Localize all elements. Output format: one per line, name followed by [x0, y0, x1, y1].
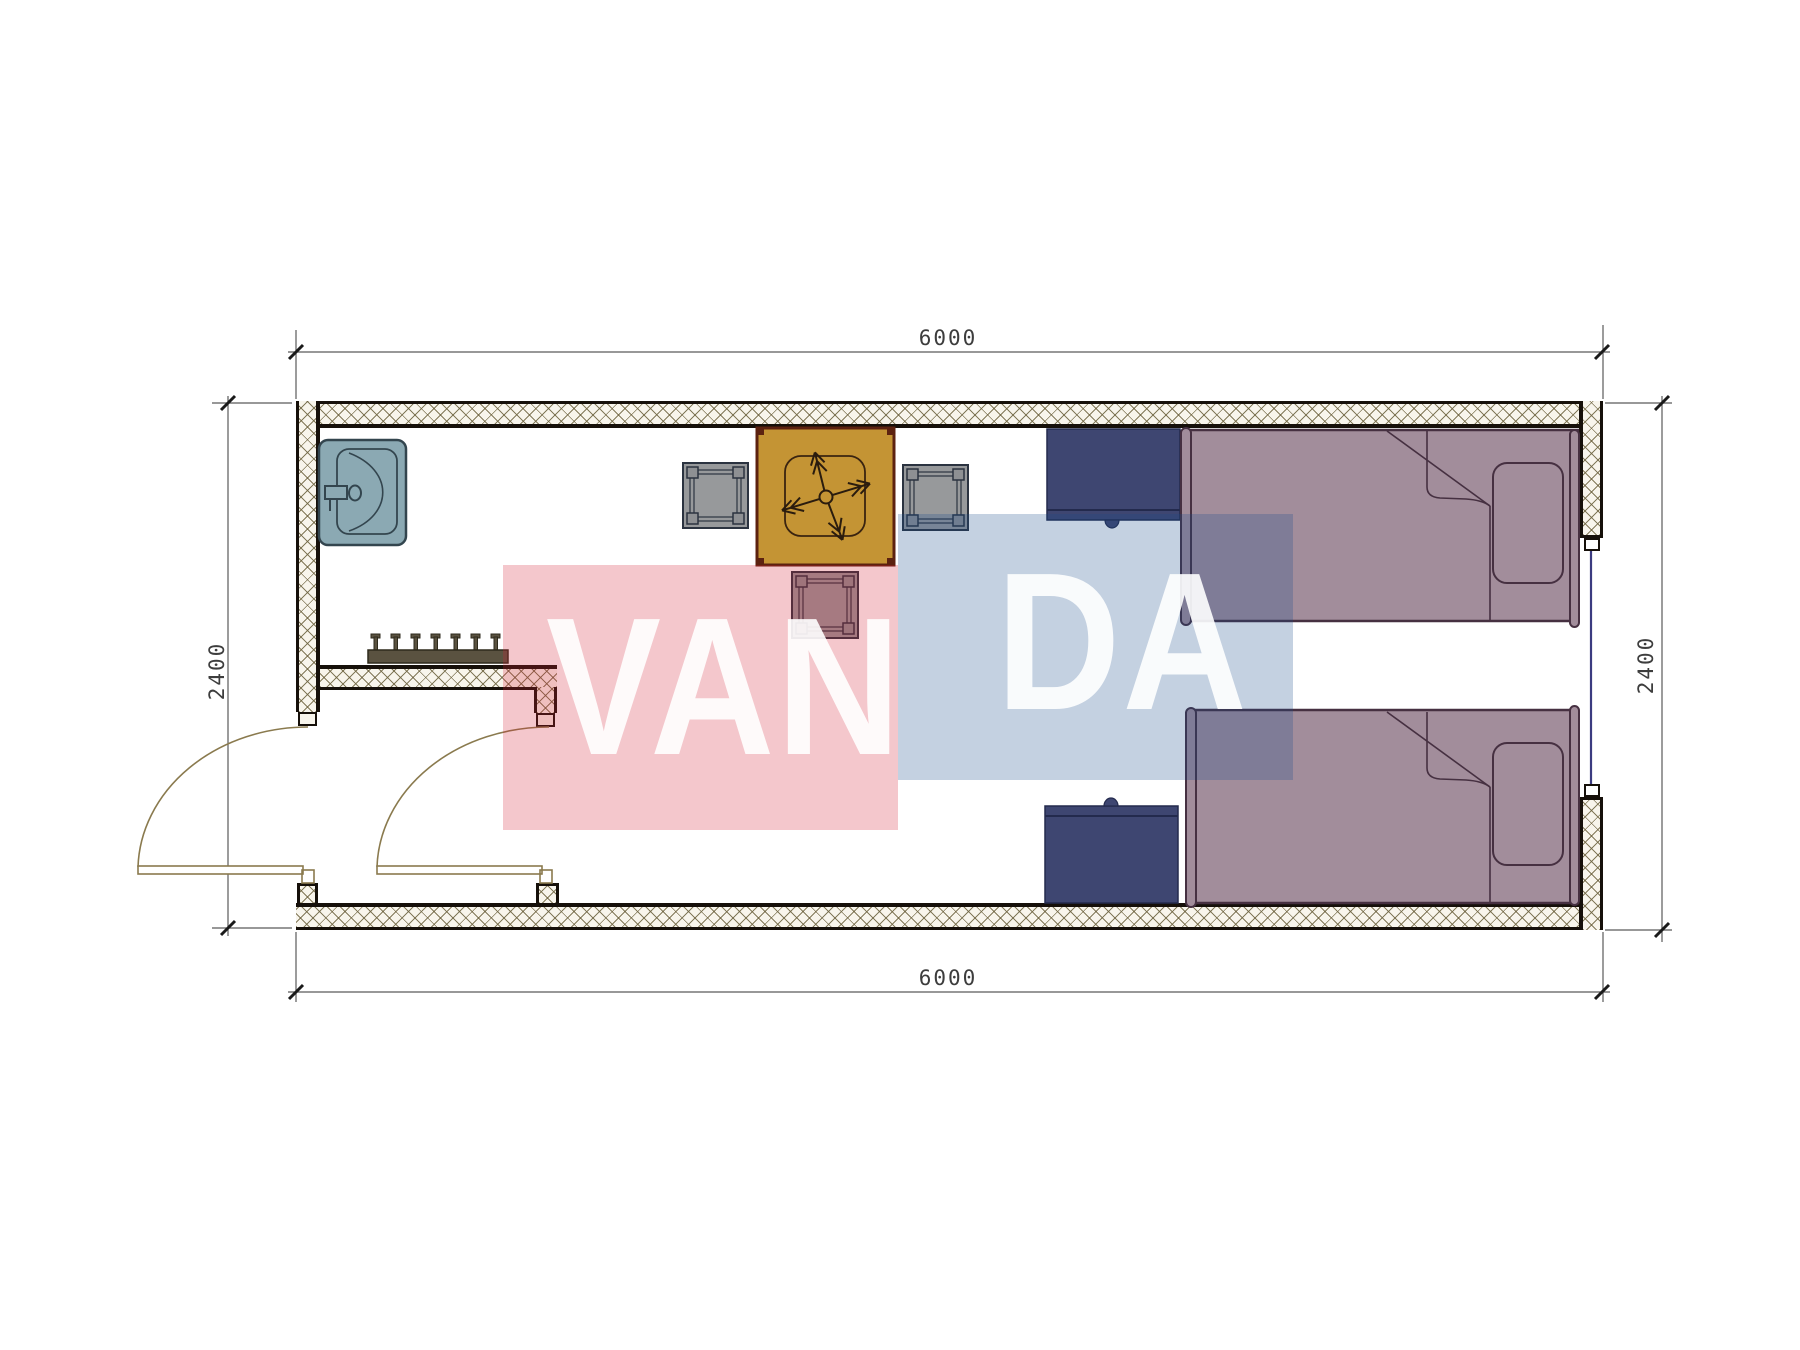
pillow-top [1493, 463, 1563, 583]
dimension-label-top: 6000 [903, 326, 993, 350]
coat-rack [368, 634, 508, 663]
table [757, 428, 894, 565]
watermark-text-van: VAN [546, 589, 903, 785]
sink-tap [325, 486, 347, 499]
dimension-label-left: 2400 [205, 626, 229, 716]
watermark-text-da: DA [996, 544, 1249, 740]
pillow-bottom [1493, 743, 1563, 865]
floor-plan-canvas: VAN DA 6000 6000 2400 2400 [0, 0, 1800, 1350]
dimension-label-bottom: 6000 [903, 966, 993, 990]
stool-left [683, 463, 748, 528]
sink [319, 440, 406, 545]
door-left [138, 727, 314, 883]
dimension-label-right: 2400 [1634, 620, 1658, 710]
nightstand-bottom [1045, 798, 1178, 903]
